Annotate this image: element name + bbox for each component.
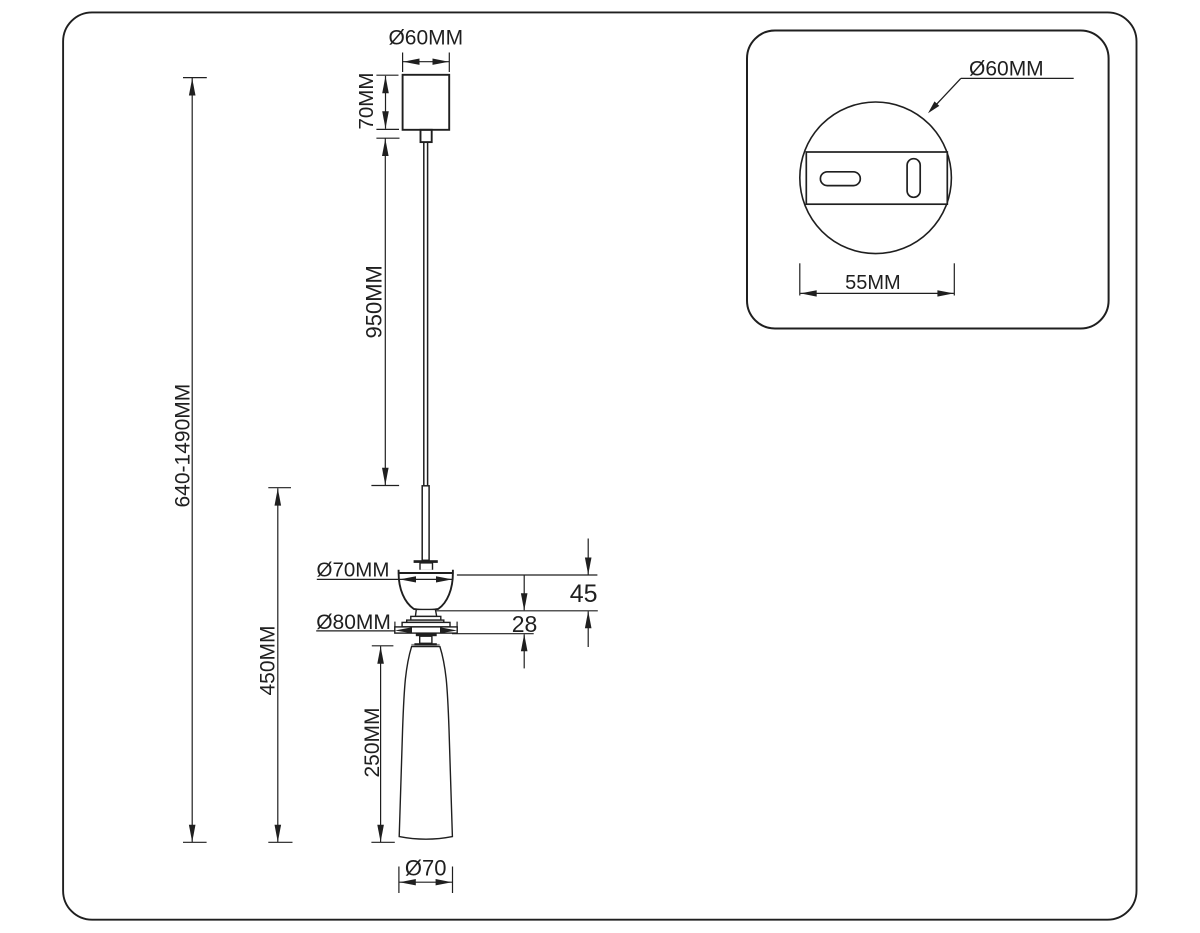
svg-text:Ø70: Ø70 bbox=[405, 856, 447, 881]
svg-text:Ø60MM: Ø60MM bbox=[969, 57, 1044, 80]
svg-text:28: 28 bbox=[512, 611, 538, 637]
svg-text:450MM: 450MM bbox=[257, 625, 280, 695]
svg-text:Ø60MM: Ø60MM bbox=[388, 27, 463, 50]
svg-text:70MM: 70MM bbox=[355, 73, 378, 130]
svg-text:250MM: 250MM bbox=[361, 707, 384, 777]
svg-text:Ø70MM: Ø70MM bbox=[317, 558, 390, 581]
svg-text:45: 45 bbox=[570, 580, 598, 608]
svg-text:55MM: 55MM bbox=[845, 272, 901, 294]
svg-text:640-1490MM: 640-1490MM bbox=[172, 384, 195, 508]
svg-text:950MM: 950MM bbox=[362, 265, 387, 338]
